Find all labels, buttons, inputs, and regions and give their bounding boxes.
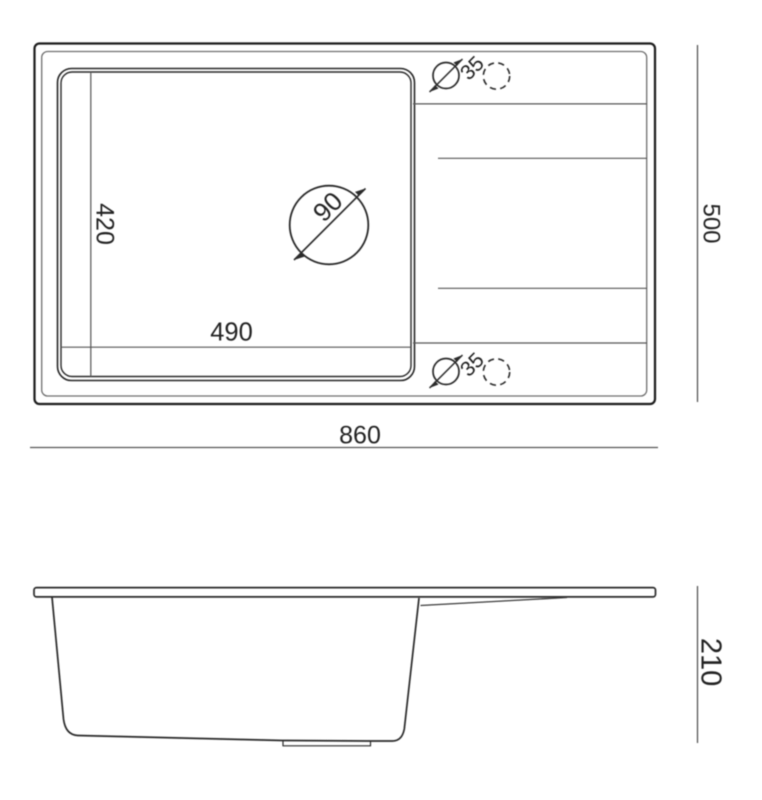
svg-text:420: 420 [91, 203, 119, 245]
svg-text:860: 860 [339, 422, 381, 450]
svg-text:210: 210 [695, 638, 727, 686]
svg-text:500: 500 [698, 203, 725, 243]
svg-text:490: 490 [210, 319, 253, 347]
